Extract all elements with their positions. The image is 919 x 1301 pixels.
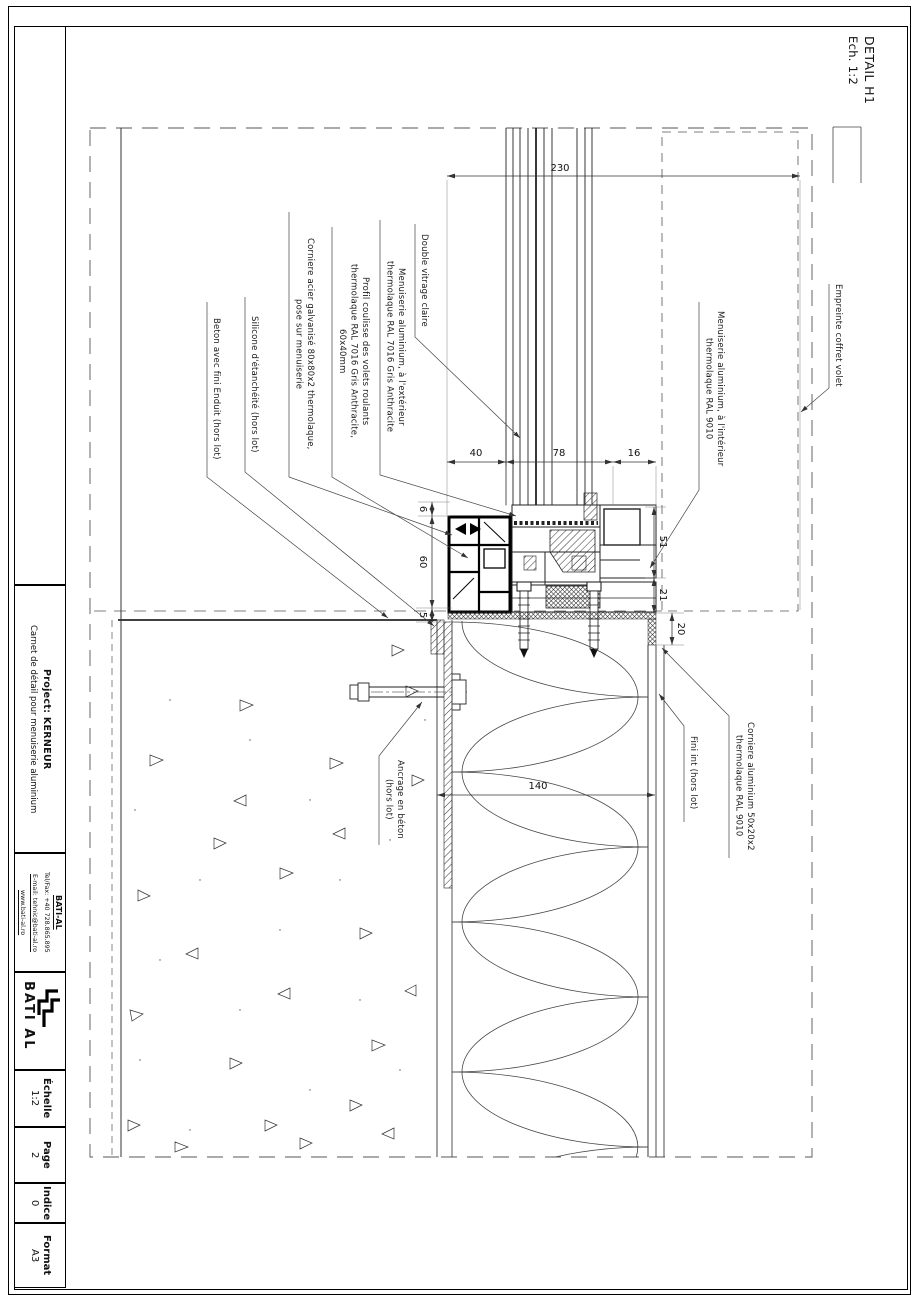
corniere-alu-section bbox=[648, 619, 656, 645]
coffret-box bbox=[604, 509, 640, 545]
coulisse-steel-profile bbox=[449, 517, 510, 612]
dim-5: 5 bbox=[417, 612, 428, 618]
detail-drawing: 230 40 78 16 6 60 5 51 21 20 140 bbox=[0, 0, 919, 1301]
dim-20: 20 bbox=[675, 623, 686, 636]
dimensions: 230 40 78 16 6 60 5 51 21 20 140 bbox=[416, 163, 800, 795]
insulation bbox=[452, 547, 648, 1297]
dim-60: 60 bbox=[417, 556, 428, 569]
dim-40: 40 bbox=[470, 448, 483, 459]
concrete-wall bbox=[118, 128, 437, 1157]
window-glazing-section bbox=[506, 128, 592, 505]
coulisse-screw bbox=[584, 493, 597, 520]
concrete-triangles bbox=[128, 645, 424, 1152]
leader-lines bbox=[207, 212, 829, 858]
dim-16: 16 bbox=[628, 448, 641, 459]
aluminium-frame-detail bbox=[512, 493, 656, 612]
dim-230: 230 bbox=[550, 163, 569, 174]
anchor-rail bbox=[444, 622, 452, 888]
empreinte-coffret-outline bbox=[662, 132, 798, 611]
concrete-dots bbox=[134, 699, 425, 1130]
dim-21: 21 bbox=[657, 589, 668, 602]
anchor-bolt bbox=[350, 622, 468, 888]
drawing-sheet: Project: KERNEUR Carnet de détail pour m… bbox=[0, 0, 919, 1301]
dim-6: 6 bbox=[417, 506, 428, 512]
dim-140: 140 bbox=[528, 781, 547, 792]
corner-mark bbox=[833, 127, 861, 183]
dim-78: 78 bbox=[553, 448, 566, 459]
